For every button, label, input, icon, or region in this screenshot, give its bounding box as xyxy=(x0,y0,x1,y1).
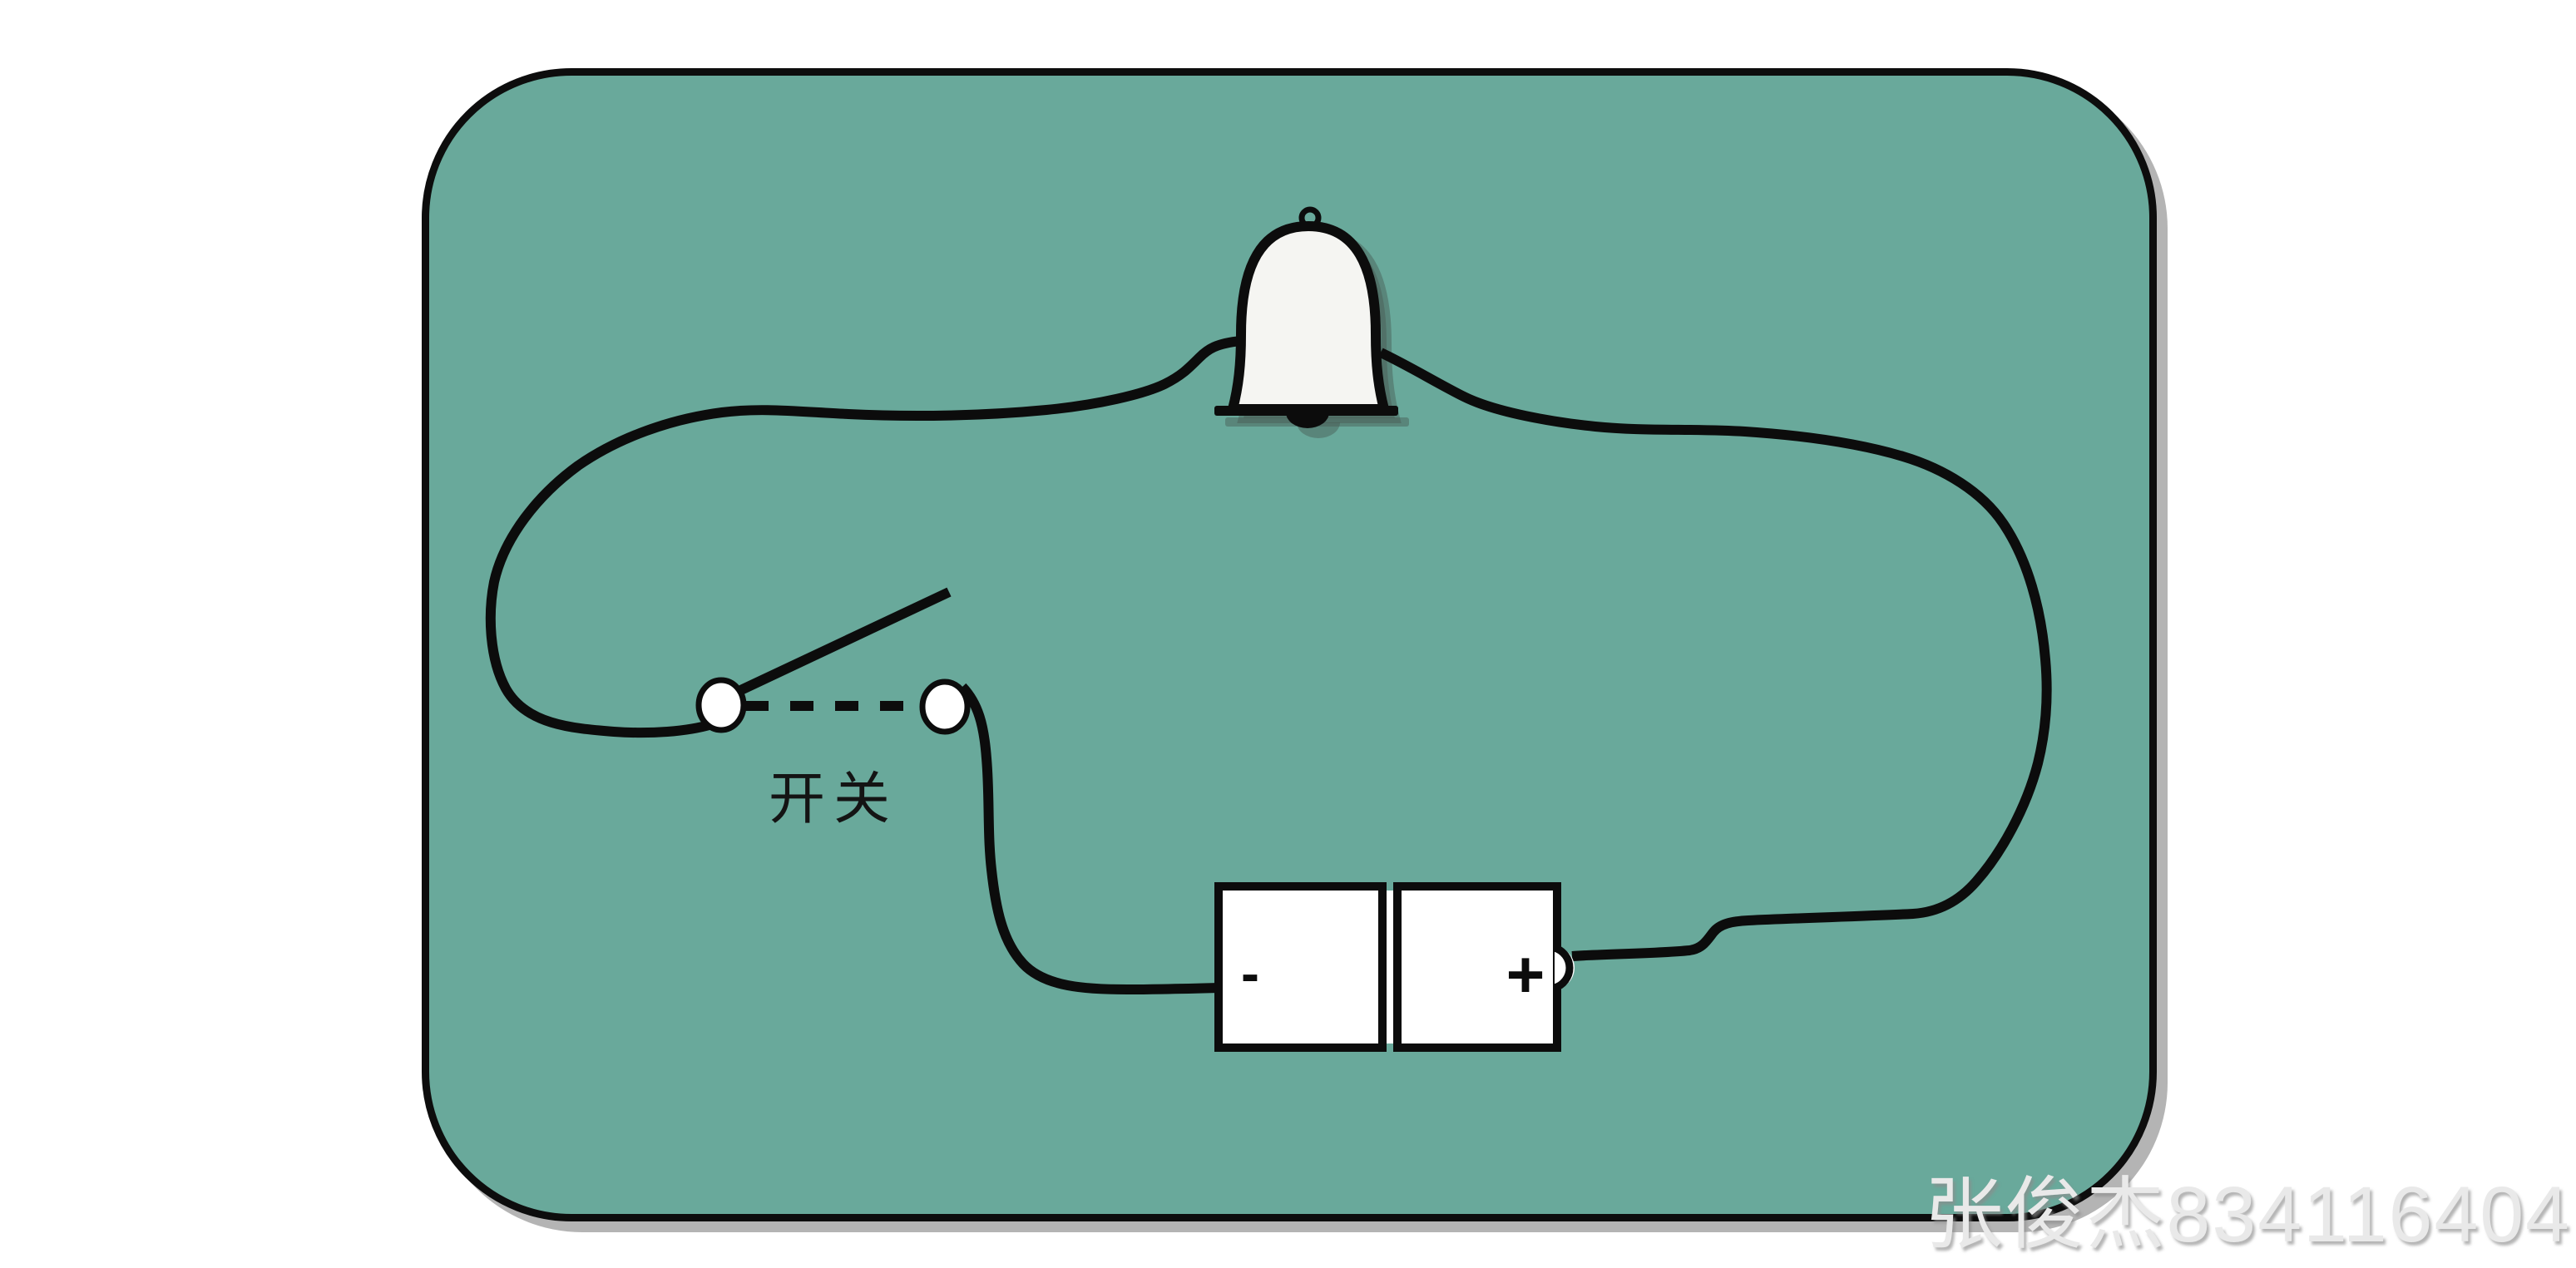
bell-icon xyxy=(1233,226,1384,409)
switch-label: 开关 xyxy=(769,767,898,831)
watermark: 张俊杰834116404 xyxy=(1925,1151,2571,1265)
circuit-diagram: - + 开关 xyxy=(0,0,2576,1268)
switch-lever xyxy=(730,592,949,695)
battery-negative-label: - xyxy=(1241,942,1259,1004)
battery-positive-label: + xyxy=(1506,938,1545,1012)
wire-switch-to-battery xyxy=(962,687,1219,989)
battery: - + xyxy=(1219,886,1575,1048)
switch: 开关 xyxy=(699,592,967,831)
switch-terminal-right xyxy=(922,682,967,732)
switch-terminal-left xyxy=(699,680,744,730)
page-canvas: - + 开关 张俊杰834116404 xyxy=(0,0,2576,1268)
bell-base xyxy=(1214,406,1398,416)
wire-bell-to-switch xyxy=(491,341,1241,733)
wire-battery-to-bell xyxy=(1381,353,2047,956)
bell xyxy=(1214,210,1398,428)
